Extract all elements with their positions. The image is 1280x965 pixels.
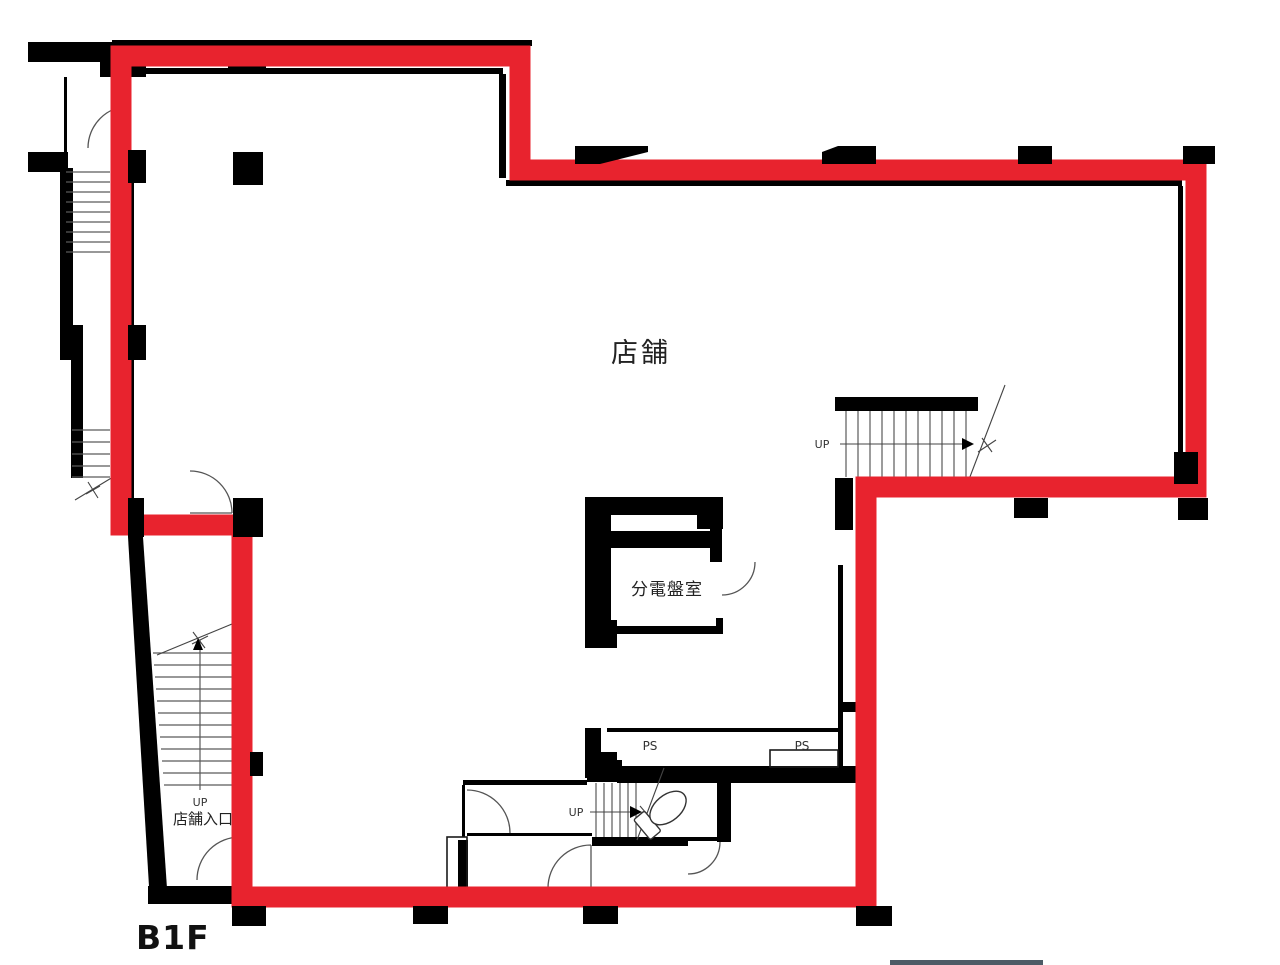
right-stair-top-bar — [835, 397, 978, 411]
col-bottom-d — [856, 906, 892, 926]
entrance-stair-treads — [153, 640, 232, 790]
door-arc-wc-bottom — [548, 845, 591, 888]
wall-top-outer-line — [112, 40, 532, 46]
elec-room-bottom-wall — [617, 626, 723, 634]
door-arc-wc-right — [688, 842, 720, 874]
col-below-red-b — [1178, 498, 1208, 520]
col-bottom-c — [583, 906, 618, 924]
elec-room-post-br — [716, 618, 723, 634]
wc-right-wall — [717, 782, 731, 842]
ps-label-1: PS — [643, 739, 658, 753]
col-left-inner-a — [128, 150, 146, 183]
wall-bottom-left-corner — [148, 886, 232, 904]
ps-label-2: PS — [795, 739, 810, 753]
wc-left-line — [462, 785, 465, 837]
floor-plan-canvas: 店舗 分電盤室 PS PS UP UP UP 店舗入口 B1F — [0, 0, 1280, 965]
col-mid-lower — [250, 752, 263, 776]
elec-room-inner-top-wall — [610, 531, 720, 548]
elec-room-bottom-left-block — [585, 620, 617, 648]
wall-top-inner-line — [135, 68, 503, 74]
col-top-d — [1183, 146, 1215, 164]
col-bottom-a — [232, 906, 266, 926]
up-label-right-stair: UP — [815, 438, 830, 451]
col-mid-right — [835, 478, 853, 530]
elec-room-post-tr — [697, 497, 723, 529]
wall-right-inner-line — [1178, 186, 1183, 470]
col-top-c — [1018, 146, 1052, 164]
door-arc-elec-room — [722, 562, 755, 595]
floor-label: B1F — [136, 918, 210, 957]
stair-treads — [66, 172, 966, 837]
wall-slanted-left — [128, 537, 168, 903]
wall-left-door-jamb — [64, 77, 67, 168]
col-right-inner — [1174, 452, 1198, 484]
ps-top-line — [607, 728, 838, 732]
elec-room-right-wall — [710, 529, 722, 562]
electrical-room-label: 分電盤室 — [631, 580, 703, 600]
wc-top-block — [587, 760, 622, 782]
wall-top2-inner-line — [506, 180, 1182, 186]
wall-bottom-thick — [617, 766, 857, 783]
col-top-b — [822, 146, 876, 164]
ps-wall-line-vertical — [838, 565, 843, 770]
entrance-stair-break-line — [157, 624, 232, 655]
door-arc-wc-left — [467, 790, 510, 833]
col-left-inner-c — [128, 498, 144, 537]
door-arc-left-mid — [190, 471, 232, 513]
right-stair-arrowhead — [962, 438, 974, 450]
wall-step-vertical — [499, 74, 506, 178]
col-left-inner-b — [128, 325, 146, 360]
col-below-red-a — [1014, 498, 1048, 518]
left-stair-break-line — [75, 477, 113, 500]
wall-top-left-bar — [28, 42, 114, 62]
wc-right-line — [688, 837, 717, 841]
wc-top-line — [463, 780, 587, 785]
wall-left-stair-step — [60, 325, 83, 360]
col-bottom-b — [413, 906, 448, 924]
freestanding-column — [233, 152, 263, 185]
wc-stair-bottom-wall — [592, 837, 688, 846]
floor-plan: 店舗 分電盤室 PS PS UP UP UP 店舗入口 B1F — [0, 0, 1280, 965]
toilet-fixture — [634, 785, 693, 840]
store-entrance-label: 店舗入口 — [173, 810, 233, 828]
wall-left-stair-lower — [71, 358, 83, 478]
up-label-entrance: UP — [193, 796, 208, 809]
store-label: 店舗 — [611, 338, 671, 369]
bottom-break-bar — [890, 960, 1043, 965]
wc-mid-line — [467, 833, 592, 836]
col-mid-corner — [233, 498, 263, 537]
up-label-wc-stair: UP — [569, 806, 584, 819]
